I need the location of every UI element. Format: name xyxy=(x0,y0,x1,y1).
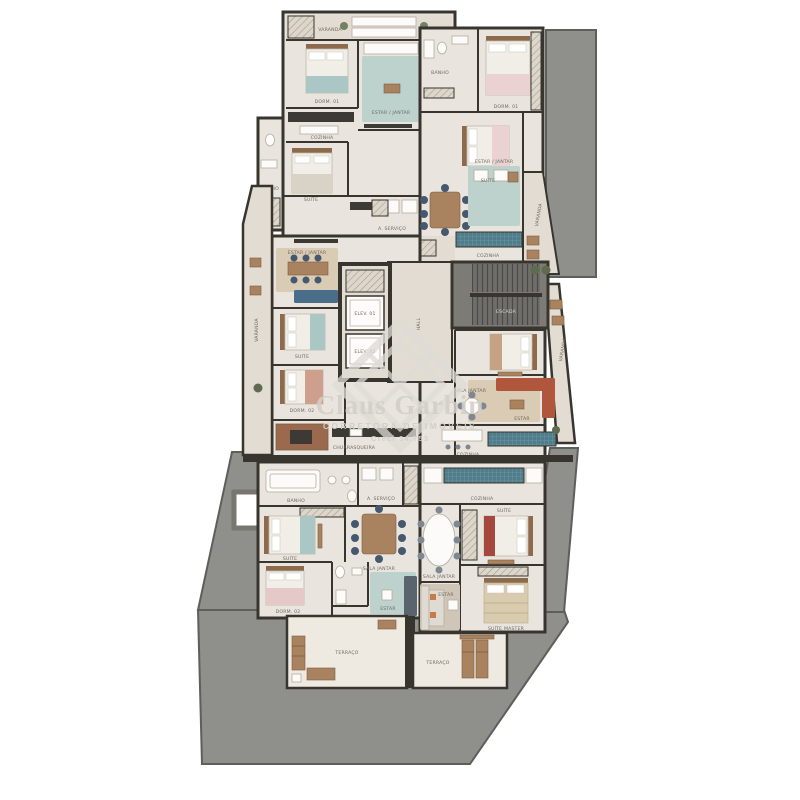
kitchen xyxy=(424,468,542,483)
room-label: SUÍTE xyxy=(304,196,318,203)
watermark-tagline: CORRETORA DE IMÓVEIS xyxy=(323,420,477,431)
terrace-bottom-right-unit: TERRAÇO xyxy=(413,633,507,688)
room-label: DORM. 01 xyxy=(494,104,519,110)
room-label: DORM. 02 xyxy=(276,609,301,615)
room-label: SUÍTE MASTER xyxy=(488,625,525,632)
stairs xyxy=(452,262,551,328)
watermark-license: Creci 34.753 xyxy=(371,434,429,443)
floor-plan-canvas: VARANDA DORM. 01 ESTAR / JANTAR COZINHA … xyxy=(0,0,800,800)
room-label: COZINHA xyxy=(311,135,334,141)
double-bed-master xyxy=(478,567,528,623)
room-label: COZINHA xyxy=(471,496,494,502)
room-label: BANHO xyxy=(431,70,449,76)
room-label: ESCADA xyxy=(496,309,517,315)
pergola-hatch xyxy=(288,16,314,38)
service-shaft xyxy=(420,240,436,256)
room-label: ELEV. 01 xyxy=(354,311,375,317)
room-label: COZINHA xyxy=(477,253,500,259)
watermark-name: Claus Garbin xyxy=(316,390,485,420)
room-label: DORM. 01 xyxy=(315,99,340,105)
room-label: TERRAÇO xyxy=(425,660,449,666)
double-bed-teal xyxy=(306,44,348,93)
room-label: TERRAÇO xyxy=(334,650,358,656)
elevator-block xyxy=(338,262,392,382)
double-bed-suite xyxy=(462,510,533,564)
room-label: ESTAR / JANTAR xyxy=(372,110,411,116)
room-label: SUÍTE xyxy=(497,507,511,514)
floor-plan-svg: VARANDA DORM. 01 ESTAR / JANTAR COZINHA … xyxy=(0,0,800,800)
double-bed-pink xyxy=(486,36,530,95)
kitchen-counter-mosaic xyxy=(456,232,522,247)
room-label: SALA JANTAR xyxy=(363,566,396,572)
room-label: SUÍTE xyxy=(283,555,297,562)
sectional-sofa xyxy=(420,584,460,630)
room-label: A. SERVIÇO xyxy=(378,226,406,232)
room-label: VARANDA xyxy=(254,318,260,342)
room-label: SALA JANTAR xyxy=(423,574,456,580)
living-area xyxy=(468,166,520,226)
double-bed-pink xyxy=(266,566,304,605)
room-label: BANHO xyxy=(287,498,305,504)
room-label: VARANDA xyxy=(318,27,342,33)
wardrobe xyxy=(531,32,541,110)
room-label: DORM. 02 xyxy=(290,408,315,414)
room-label: SUÍTE xyxy=(481,177,495,184)
room-label: ESTAR xyxy=(438,592,454,598)
double-bed-suite xyxy=(280,314,325,350)
service-shaft xyxy=(372,200,388,216)
room-label: A. SERVIÇO xyxy=(367,496,395,502)
room-label: ESTAR xyxy=(380,606,396,612)
service-shaft xyxy=(404,466,418,504)
room-label: HALL xyxy=(416,318,422,331)
double-bed-suite xyxy=(490,334,537,376)
room-label: CHURRASQUEIRA xyxy=(333,445,376,451)
room-label: ESTAR / JANTAR xyxy=(475,159,514,165)
double-bed-suite xyxy=(292,148,332,193)
room-label: ESTAR / JANTAR xyxy=(288,250,327,256)
unit-bottom-right: COZINHA SALA JANTAR SUÍTE SUÍTE MASTER E… xyxy=(418,462,546,632)
unit-bottom-left: BANHO A. SERVIÇO SUÍTE SALA JANTAR DORM.… xyxy=(258,462,420,618)
room-label: SUÍTE xyxy=(295,353,309,360)
room-label: ESTAR xyxy=(514,416,530,422)
terrace-bottom-left-unit: TERRAÇO xyxy=(287,616,407,688)
